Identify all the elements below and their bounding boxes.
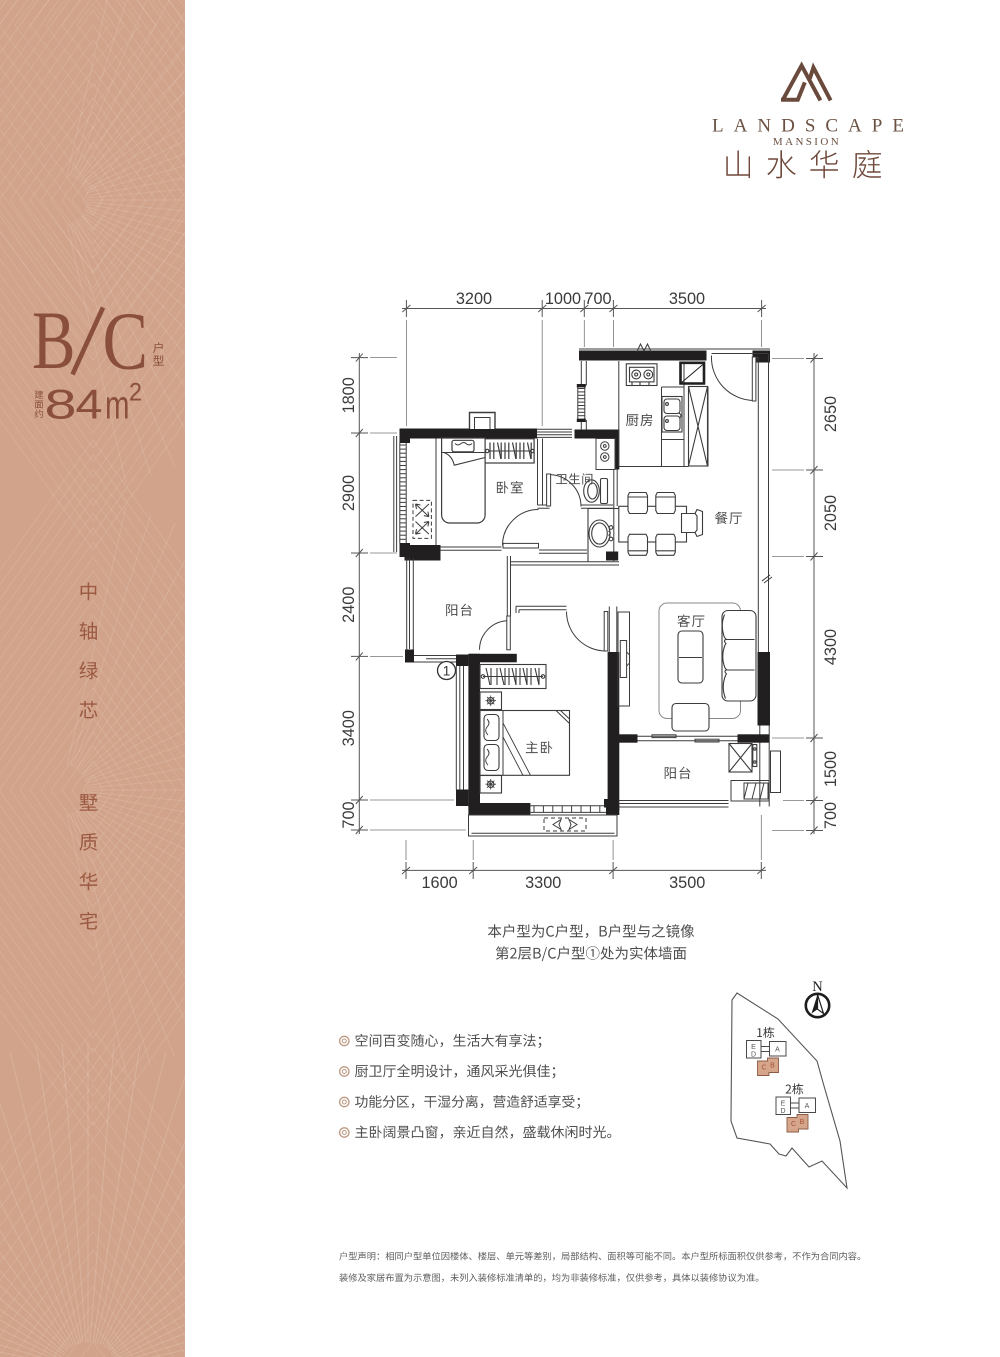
svg-text:N: N xyxy=(812,979,823,995)
svg-text:A: A xyxy=(805,1103,810,1110)
svg-text:A: A xyxy=(775,1047,780,1054)
svg-text:D: D xyxy=(751,1052,756,1059)
svg-text:C: C xyxy=(761,1065,766,1072)
svg-text:3300: 3300 xyxy=(525,874,561,892)
svg-text:C: C xyxy=(791,1121,796,1128)
svg-text:700: 700 xyxy=(340,801,358,828)
svg-text:2900: 2900 xyxy=(340,475,358,511)
svg-text:1800: 1800 xyxy=(340,377,358,413)
svg-text:3500: 3500 xyxy=(669,290,705,308)
svg-text:C: C xyxy=(103,295,149,387)
svg-text:E: E xyxy=(781,1101,786,1108)
svg-text:1000: 1000 xyxy=(545,290,581,308)
svg-text:4: 4 xyxy=(76,380,103,425)
svg-text:4300: 4300 xyxy=(822,629,840,665)
svg-text:3500: 3500 xyxy=(669,874,705,892)
svg-text:B: B xyxy=(770,1063,775,1070)
svg-text:MANSION: MANSION xyxy=(773,136,841,148)
svg-text:B: B xyxy=(32,294,76,386)
svg-text:3400: 3400 xyxy=(340,710,358,746)
svg-text:LANDSCAPE: LANDSCAPE xyxy=(712,116,914,137)
svg-text:3200: 3200 xyxy=(456,290,492,308)
svg-text:2400: 2400 xyxy=(340,587,358,623)
svg-text:B: B xyxy=(800,1119,805,1126)
svg-text:1500: 1500 xyxy=(822,751,840,787)
svg-text:m: m xyxy=(105,383,130,425)
svg-text:1600: 1600 xyxy=(421,874,457,892)
svg-text:2650: 2650 xyxy=(822,396,840,432)
svg-text:2050: 2050 xyxy=(822,495,840,531)
svg-text:1: 1 xyxy=(443,664,451,679)
svg-text:2: 2 xyxy=(129,379,142,407)
svg-text:D: D xyxy=(780,1108,785,1115)
svg-text:700: 700 xyxy=(584,290,611,308)
svg-text:E: E xyxy=(751,1044,756,1051)
svg-text:700: 700 xyxy=(822,802,840,829)
